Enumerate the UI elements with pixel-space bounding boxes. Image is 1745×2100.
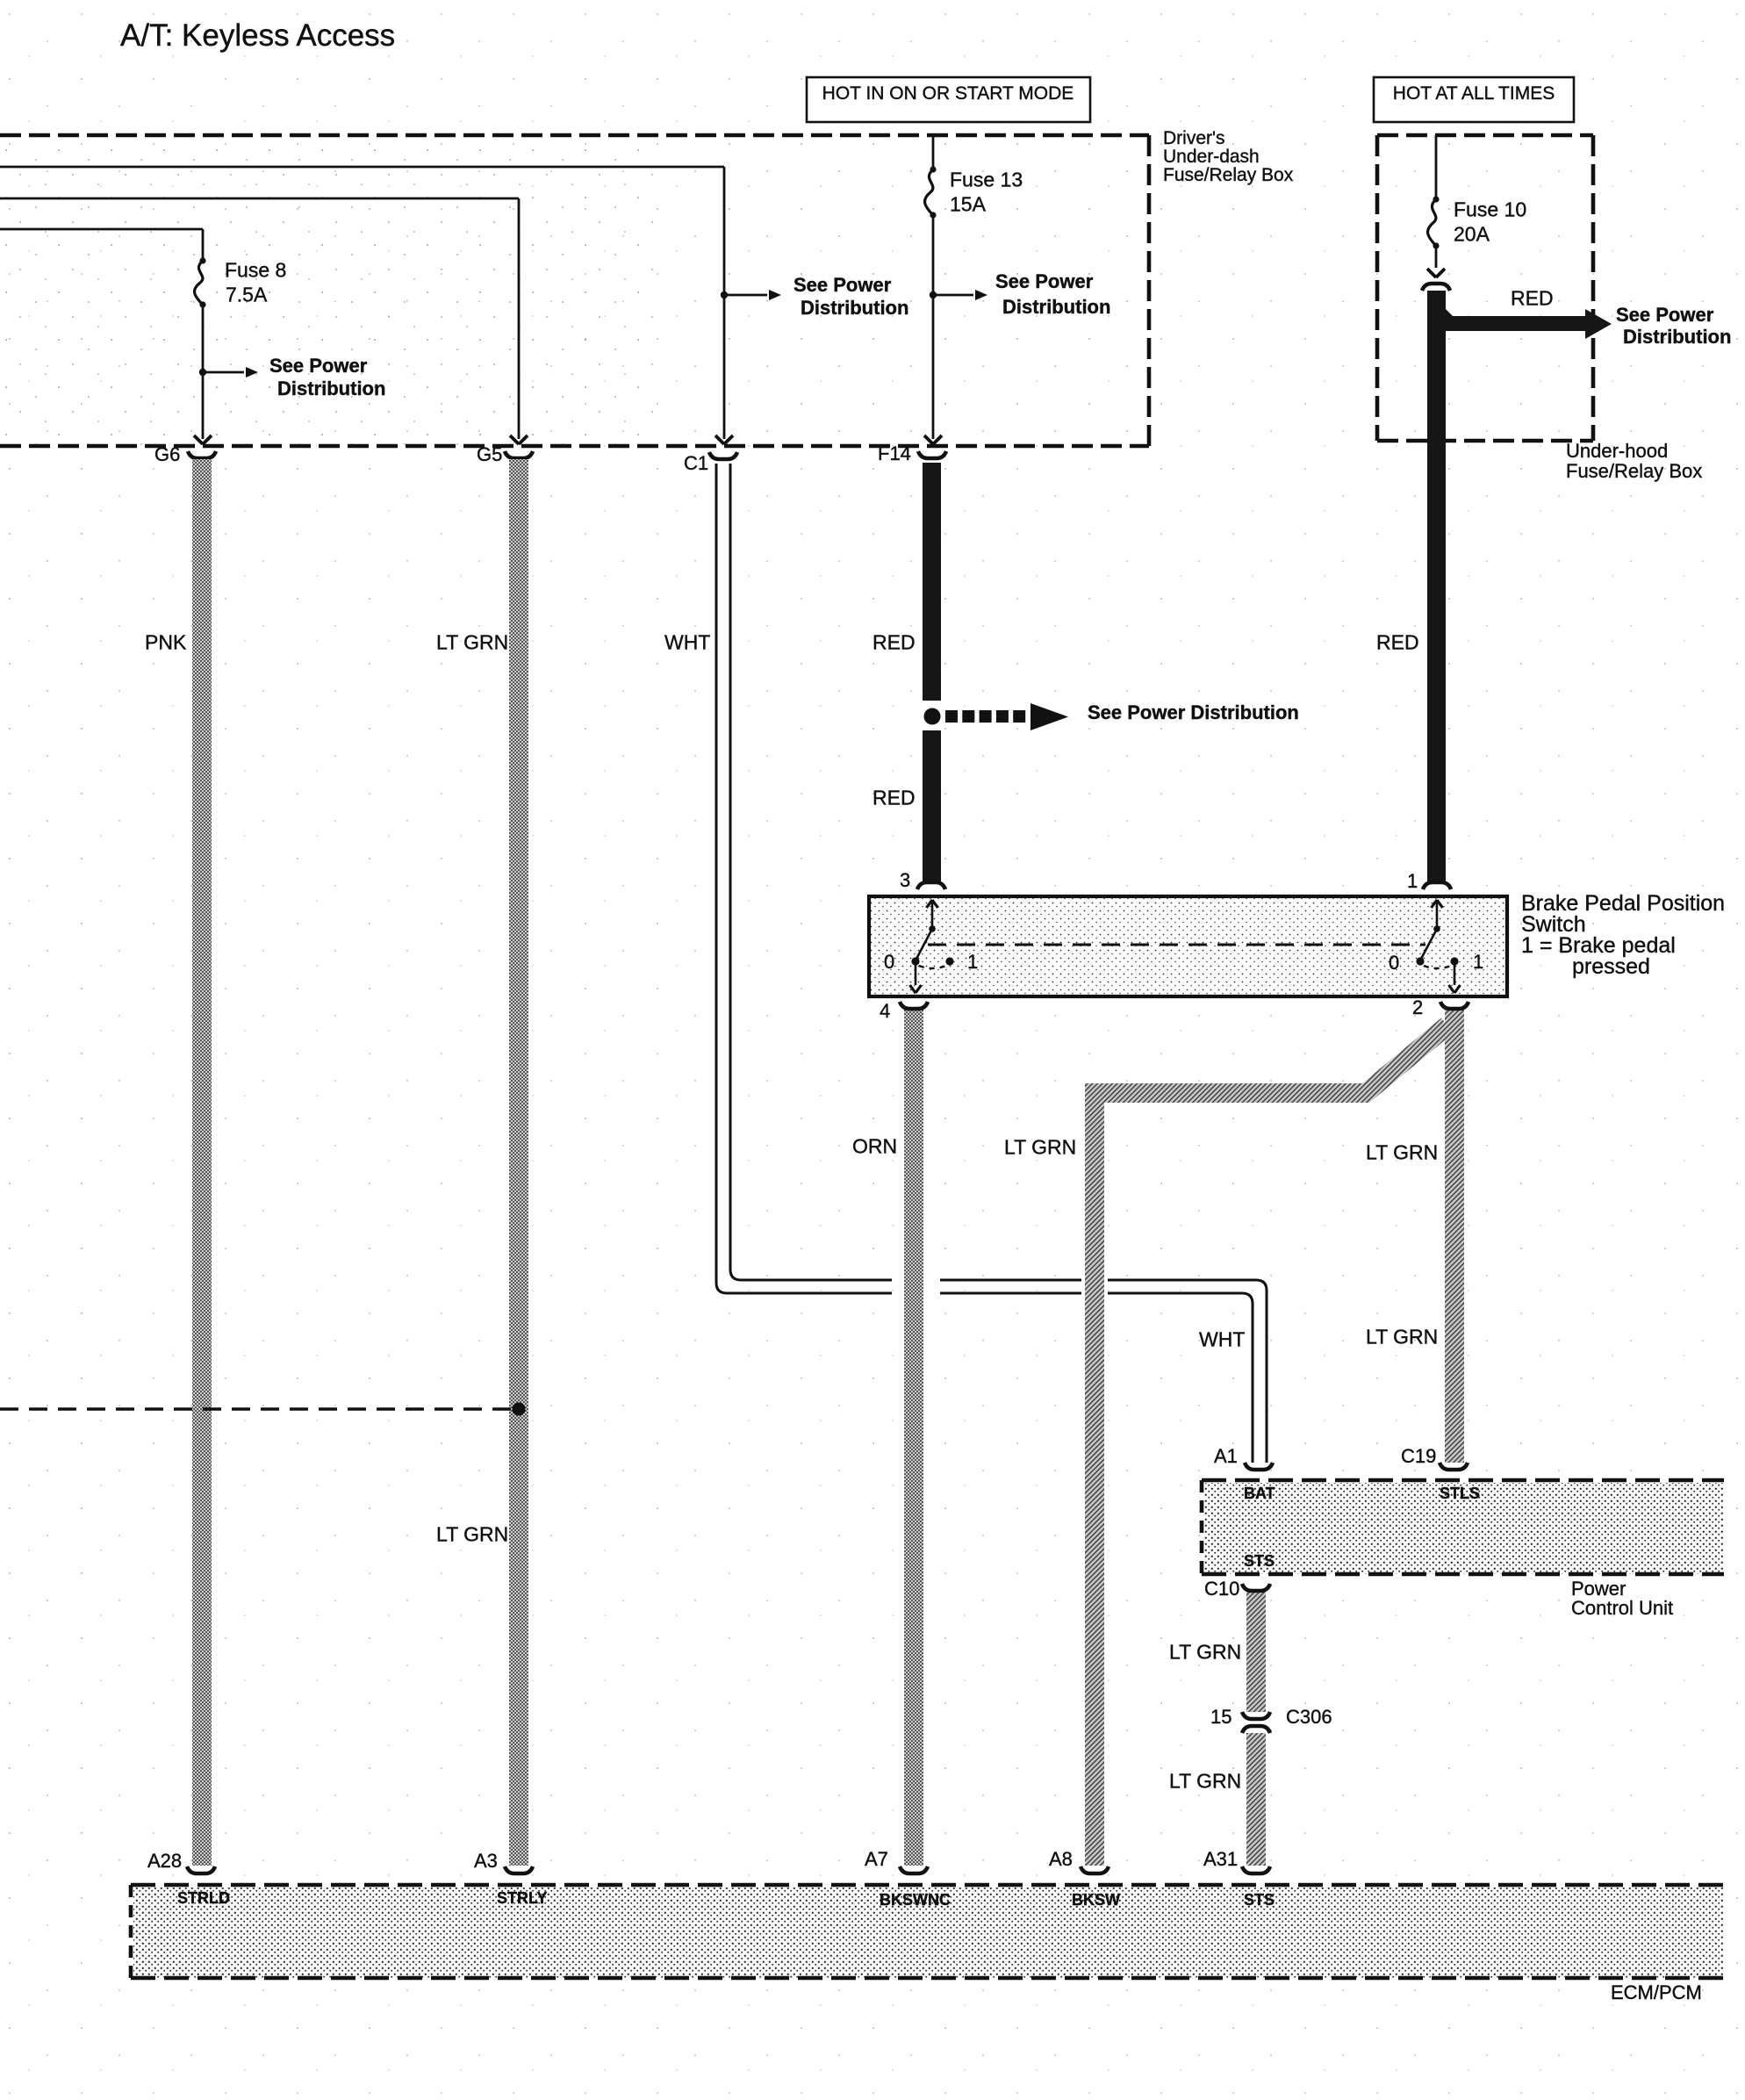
- svg-text:PNK: PNK: [145, 631, 187, 654]
- svg-text:LT GRN: LT GRN: [1169, 1770, 1241, 1793]
- svg-text:WHT: WHT: [664, 631, 710, 654]
- svg-text:RED: RED: [872, 631, 916, 654]
- svg-text:Fuse/Relay Box: Fuse/Relay Box: [1163, 165, 1294, 185]
- svg-text:Distribution: Distribution: [277, 378, 385, 399]
- svg-text:Distribution: Distribution: [1623, 326, 1731, 348]
- svg-text:0: 0: [1389, 952, 1399, 974]
- svg-text:C306: C306: [1286, 1706, 1332, 1728]
- svg-text:1: 1: [967, 951, 978, 973]
- svg-text:A/T: Keyless Access: A/T: Keyless Access: [120, 18, 395, 53]
- svg-text:A1: A1: [1214, 1445, 1238, 1467]
- svg-text:Under-dash: Under-dash: [1163, 147, 1260, 167]
- svg-text:pressed: pressed: [1572, 954, 1650, 979]
- svg-text:See Power Distribution: See Power Distribution: [1088, 701, 1299, 723]
- svg-text:STLS: STLS: [1440, 1485, 1480, 1502]
- svg-text:Under-hood: Under-hood: [1566, 440, 1668, 462]
- svg-text:15: 15: [1210, 1706, 1232, 1728]
- svg-text:1: 1: [1473, 951, 1483, 973]
- svg-text:LT GRN: LT GRN: [436, 1523, 508, 1546]
- svg-text:LT GRN: LT GRN: [436, 631, 508, 654]
- svg-text:LT GRN: LT GRN: [1366, 1326, 1438, 1348]
- svg-text:G6: G6: [154, 443, 180, 465]
- svg-text:3: 3: [900, 869, 910, 891]
- svg-text:BAT: BAT: [1244, 1485, 1275, 1502]
- svg-text:STS: STS: [1244, 1552, 1275, 1570]
- svg-text:See Power: See Power: [995, 270, 1094, 292]
- svg-text:HOT AT ALL TIMES: HOT AT ALL TIMES: [1393, 83, 1555, 104]
- svg-text:A31: A31: [1203, 1848, 1238, 1870]
- svg-text:G5: G5: [477, 443, 502, 465]
- svg-text:Fuse 8: Fuse 8: [225, 259, 286, 282]
- svg-text:WHT: WHT: [1199, 1328, 1245, 1351]
- svg-text:RED: RED: [872, 787, 916, 809]
- svg-text:C10: C10: [1204, 1578, 1239, 1600]
- svg-text:See Power: See Power: [269, 355, 368, 377]
- svg-text:0: 0: [884, 951, 894, 973]
- svg-text:See Power: See Power: [1616, 304, 1714, 326]
- svg-text:Control Unit: Control Unit: [1571, 1597, 1673, 1619]
- svg-text:A8: A8: [1049, 1848, 1073, 1870]
- svg-text:LT GRN: LT GRN: [1004, 1136, 1076, 1159]
- svg-text:STS: STS: [1244, 1891, 1275, 1909]
- svg-text:15A: 15A: [950, 193, 987, 216]
- svg-text:STRLY: STRLY: [497, 1889, 547, 1907]
- svg-text:A28: A28: [147, 1850, 182, 1872]
- svg-text:LT GRN: LT GRN: [1366, 1141, 1438, 1164]
- svg-text:C1: C1: [684, 452, 708, 474]
- svg-text:STRLD: STRLD: [177, 1889, 230, 1907]
- svg-text:See Power: See Power: [794, 274, 892, 296]
- svg-text:20A: 20A: [1454, 223, 1490, 246]
- svg-text:HOT IN ON OR START MODE: HOT IN ON OR START MODE: [822, 83, 1074, 104]
- svg-text:1: 1: [1407, 870, 1418, 892]
- svg-text:LT GRN: LT GRN: [1169, 1641, 1241, 1664]
- svg-text:Fuse/Relay Box: Fuse/Relay Box: [1566, 460, 1702, 482]
- svg-text:C19: C19: [1401, 1445, 1436, 1467]
- svg-text:ORN: ORN: [852, 1135, 897, 1158]
- svg-text:ECM/PCM: ECM/PCM: [1611, 1981, 1702, 2003]
- svg-text:BKSW: BKSW: [1072, 1891, 1120, 1909]
- svg-text:7.5A: 7.5A: [226, 284, 268, 306]
- svg-text:A3: A3: [474, 1850, 498, 1872]
- svg-text:Distribution: Distribution: [801, 297, 908, 319]
- svg-text:BKSWNC: BKSWNC: [880, 1891, 951, 1909]
- svg-text:RED: RED: [1376, 631, 1419, 654]
- svg-text:4: 4: [880, 1000, 890, 1022]
- svg-text:RED: RED: [1511, 287, 1554, 310]
- svg-text:Fuse 10: Fuse 10: [1454, 198, 1526, 221]
- svg-text:2: 2: [1412, 996, 1423, 1018]
- svg-text:Driver's: Driver's: [1163, 128, 1225, 148]
- svg-text:A7: A7: [865, 1848, 888, 1870]
- svg-text:Fuse 13: Fuse 13: [950, 169, 1023, 191]
- svg-text:Distribution: Distribution: [1002, 296, 1110, 318]
- svg-text:F14: F14: [878, 442, 911, 464]
